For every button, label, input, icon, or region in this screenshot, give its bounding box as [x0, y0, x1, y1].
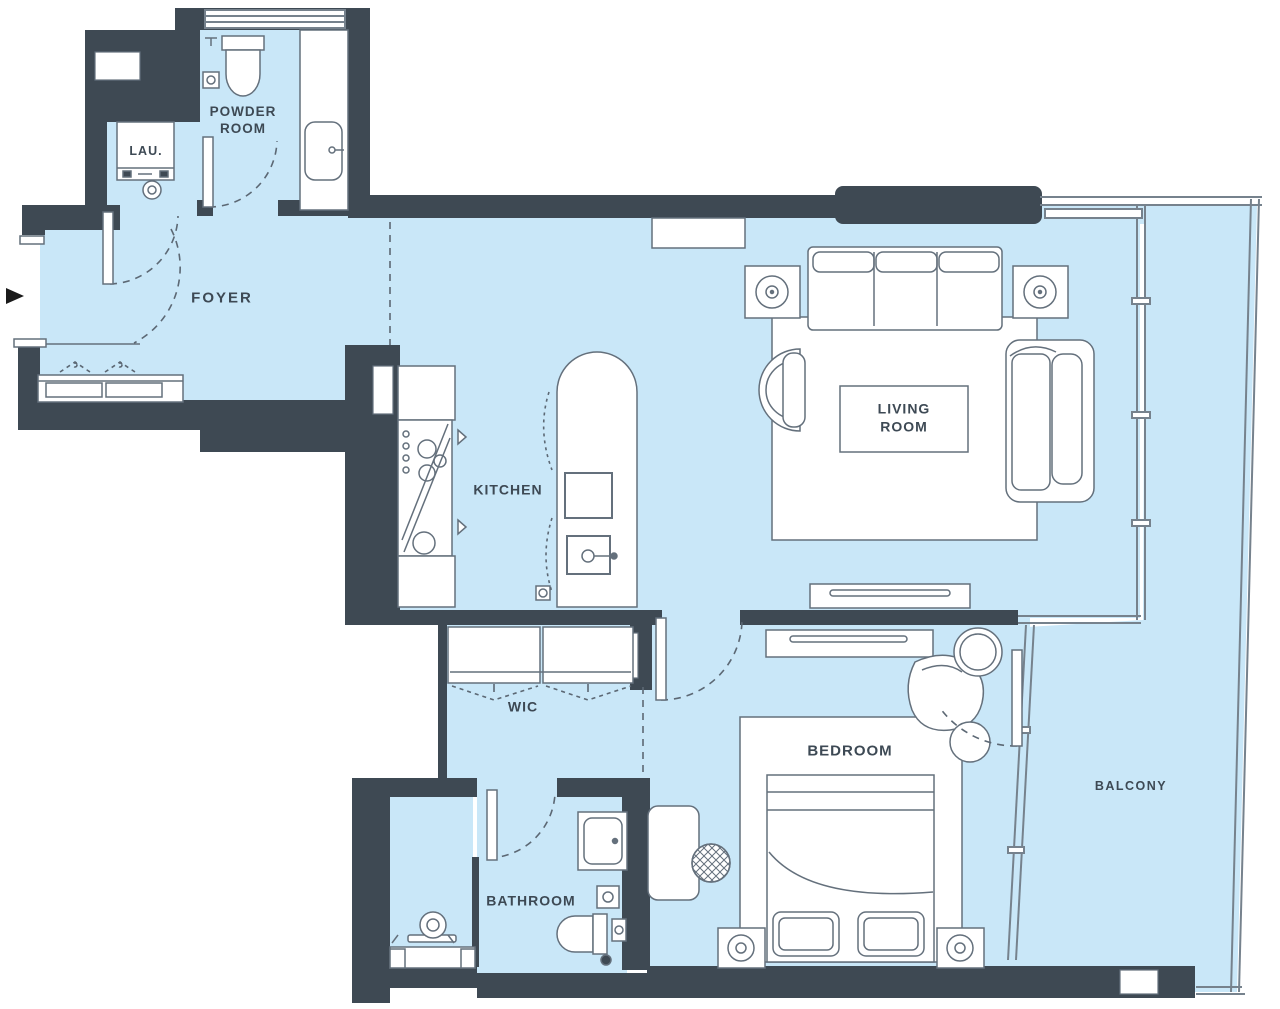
bottom-wall-notch: [1120, 970, 1158, 994]
entry-arrow-icon: [6, 288, 24, 304]
entry-frame-sill-bottom: [14, 339, 46, 347]
woven-stool-icon: [692, 844, 730, 882]
desk-icon: [648, 806, 699, 900]
floor-plan-svg: [0, 0, 1280, 1009]
balcony-door-leaf: [1012, 650, 1022, 746]
tv-console-icon: [810, 584, 970, 608]
entry-frame-sill-top: [20, 236, 44, 244]
bathroom-door-leaf: [487, 790, 497, 860]
side-table-lamp-left-icon: [745, 266, 800, 318]
dresser-icon: [766, 630, 933, 657]
balcony-top-rail: [1040, 197, 1262, 205]
round-table-icon: [954, 628, 1002, 676]
room-label-foyer: FOYER: [191, 290, 253, 309]
laundry-door-leaf: [103, 212, 113, 284]
toilet-paper-holder-icon: [612, 919, 626, 941]
nightstand-lamp-right-icon: [937, 928, 984, 968]
kitchen-sink-icon: [413, 532, 435, 554]
ceiling-vent: [652, 218, 745, 248]
room-label-laundry: LAU.: [129, 144, 162, 160]
floor-plan: POWDER ROOM LAU. FOYER KITCHEN LIVING RO…: [0, 0, 1280, 1009]
bathroom-toilet-icon: [557, 914, 607, 954]
room-label-living-room: LIVING ROOM: [859, 401, 949, 436]
chaise-lounge-icon: [1006, 340, 1094, 502]
kitchen-floor-drain-icon: [536, 586, 550, 600]
wic-wardrobe-icon: [448, 627, 633, 683]
room-label-bathroom: BATHROOM: [486, 892, 575, 910]
bed-icon: [767, 775, 934, 962]
side-table-lamp-right-icon: [1013, 266, 1068, 318]
sofa-icon: [808, 247, 1002, 330]
powder-bidet-icon: [203, 72, 219, 88]
room-label-kitchen: KITCHEN: [473, 481, 542, 499]
small-round-table-icon: [950, 722, 990, 762]
room-label-balcony: BALCONY: [1095, 779, 1167, 795]
balcony-sliding-door: [1045, 209, 1142, 218]
laundry-shaft-niche: [95, 52, 140, 80]
room-label-bedroom: BEDROOM: [807, 743, 892, 762]
bathtub-icon: [390, 947, 475, 968]
foyer-closet-icon: [38, 375, 183, 402]
bedroom-door-leaf: [656, 618, 666, 700]
kitchen-island-icon: [557, 352, 637, 607]
room-label-powder-room: POWDER ROOM: [193, 104, 293, 138]
floor-drain-icon: [601, 955, 611, 965]
kitchen-wall-niche: [373, 366, 393, 414]
powder-door-leaf: [203, 137, 213, 207]
bathroom-vanity-sink-icon: [578, 812, 627, 870]
bathroom-accessory-icon: [597, 886, 619, 908]
powder-room-window: [205, 10, 345, 28]
room-label-wic: WIC: [508, 698, 538, 716]
powder-vanity-sink-icon: [300, 30, 348, 210]
nightstand-lamp-left-icon: [718, 928, 765, 968]
